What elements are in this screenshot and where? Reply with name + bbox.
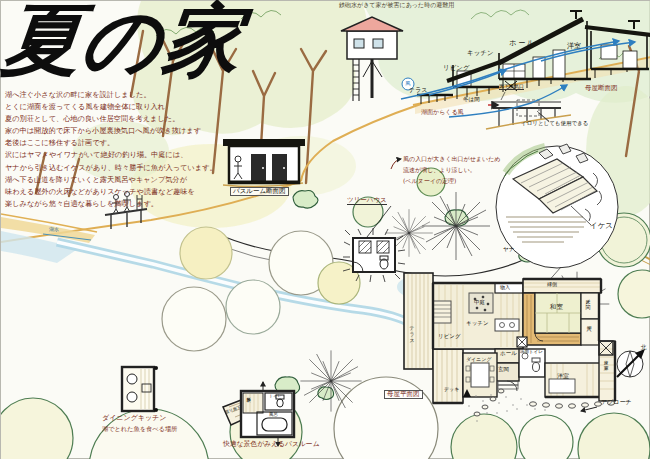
lake-water-label: 湖水 [49, 227, 59, 232]
intro-line: 老後はここに移住する計画です。 [5, 137, 191, 149]
plan-room-washroom: 洗面トイレ [520, 350, 543, 355]
irori-note-label: イロリとしても使用できる [521, 121, 588, 127]
floor-plan-caption: 母屋平面図 [384, 390, 423, 399]
intro-line: 湖へ下る山道を降りていくと露天風呂やキャンプ気分が [5, 174, 191, 186]
plan-room-tokonoma: 床ノ間 [585, 295, 590, 301]
plan-room-hall: ホール [500, 351, 517, 357]
section-room-hall: ホール [509, 40, 536, 47]
weir-label: ヤナ [503, 247, 514, 253]
section-room-living: リビング [443, 65, 470, 72]
section-room-terrace: テラス [409, 87, 427, 93]
plan-room-courtyard: 中庭 [474, 300, 485, 306]
winter-closed-label: 冬は閉 [463, 97, 480, 103]
bernoulli-note-line1: 風の入口が大きく出口がせまいため [403, 156, 500, 162]
intro-line: 夏の別荘として、心地の良い住居空間を考えました。 [5, 113, 191, 125]
intro-line: ヤナから引き込むイケスがあり、時々勝手に魚が入っています。 [5, 162, 191, 174]
plan-room-storage: 物入 [500, 285, 510, 290]
approach-label: アプローチ [601, 399, 632, 405]
floor-vent-label: 床下換気口 [499, 84, 524, 90]
plan-room-entrance: 玄関 [498, 367, 509, 373]
dining-kitchen-plan-drawing [122, 366, 158, 412]
bernoulli-note-line3: (ベルヌーイの定理) [403, 178, 456, 184]
plan-room-living: リビング [438, 334, 461, 340]
bernoulli-note-line2: 流速が増し、より涼しい。 [403, 167, 476, 173]
outdoor-bath-caption: 快適な景色がみえるバスルーム [223, 441, 320, 448]
section-room-western: 洋室 [567, 43, 581, 50]
board-title: 夏の家 [0, 0, 247, 94]
ikesu-label: イケス [590, 222, 613, 230]
intro-line: 家の中は開放的で床下から小屋裏換気口へ風が吹き抜けます [5, 125, 191, 137]
plan-room-kitchen: キッチン [466, 321, 489, 327]
plan-room-terrace: テラス [409, 323, 414, 340]
treehouse-label: ツリーハウス [347, 197, 387, 205]
section-room-kitchen: キッチン [467, 50, 494, 57]
plan-room-tatami: 和室 [550, 304, 563, 311]
compass-north-label: 北 [641, 345, 647, 351]
presentation-board: 夏の家 湖へ注ぐ小さな沢の畔に家を設計しました。 とくに湖面を渡ってくる風を建物… [0, 0, 650, 459]
intro-line: 楽しみながら悠々自適な暮らしを満喫します。 [5, 198, 191, 210]
plan-room-corridor: 渡り廊下 [603, 357, 608, 362]
intro-paragraph: 湖へ注ぐ小さな沢の畔に家を設計しました。 とくに湖面を渡ってくる風を建物全体に取… [5, 89, 191, 210]
bath-room-toilet: トイレ [269, 394, 282, 398]
bathhouse-section-drawing [223, 139, 305, 187]
intro-line: とくに湖面を渡ってくる風を建物全体に取り入れ [5, 101, 191, 113]
plan-room-dining: ダイニング [466, 357, 492, 362]
bathhouse-section-caption: バスルーム断面図 [230, 187, 289, 196]
bath-room-bath: 風呂 [269, 413, 278, 418]
evacuation-note: 鉄砲水がきて家が被害にあった時の避難用 [339, 2, 454, 8]
wind-from-lake-label: 湖面からくる風 [421, 109, 464, 115]
dining-kitchen-note: 湖でとれた魚を食べる場所 [102, 426, 177, 432]
compass-rose [617, 349, 645, 377]
main-floor-plan-drawing [404, 273, 615, 403]
plan-room-deck: デッキ [444, 387, 459, 392]
intro-line: 沢にはヤマメやイワナがいて絶好の釣り場。中庭には、 [5, 149, 191, 161]
plan-room-engawa: 縁側 [547, 282, 557, 287]
section-caption: 母屋断面図 [585, 85, 618, 92]
intro-line: 味わえる屋外の火床などがありスケッチや読書など趣味を [5, 186, 191, 198]
dining-kitchen-label: ダイニングキッチン [102, 415, 166, 422]
plan-room-western: 洋室 [557, 373, 569, 379]
